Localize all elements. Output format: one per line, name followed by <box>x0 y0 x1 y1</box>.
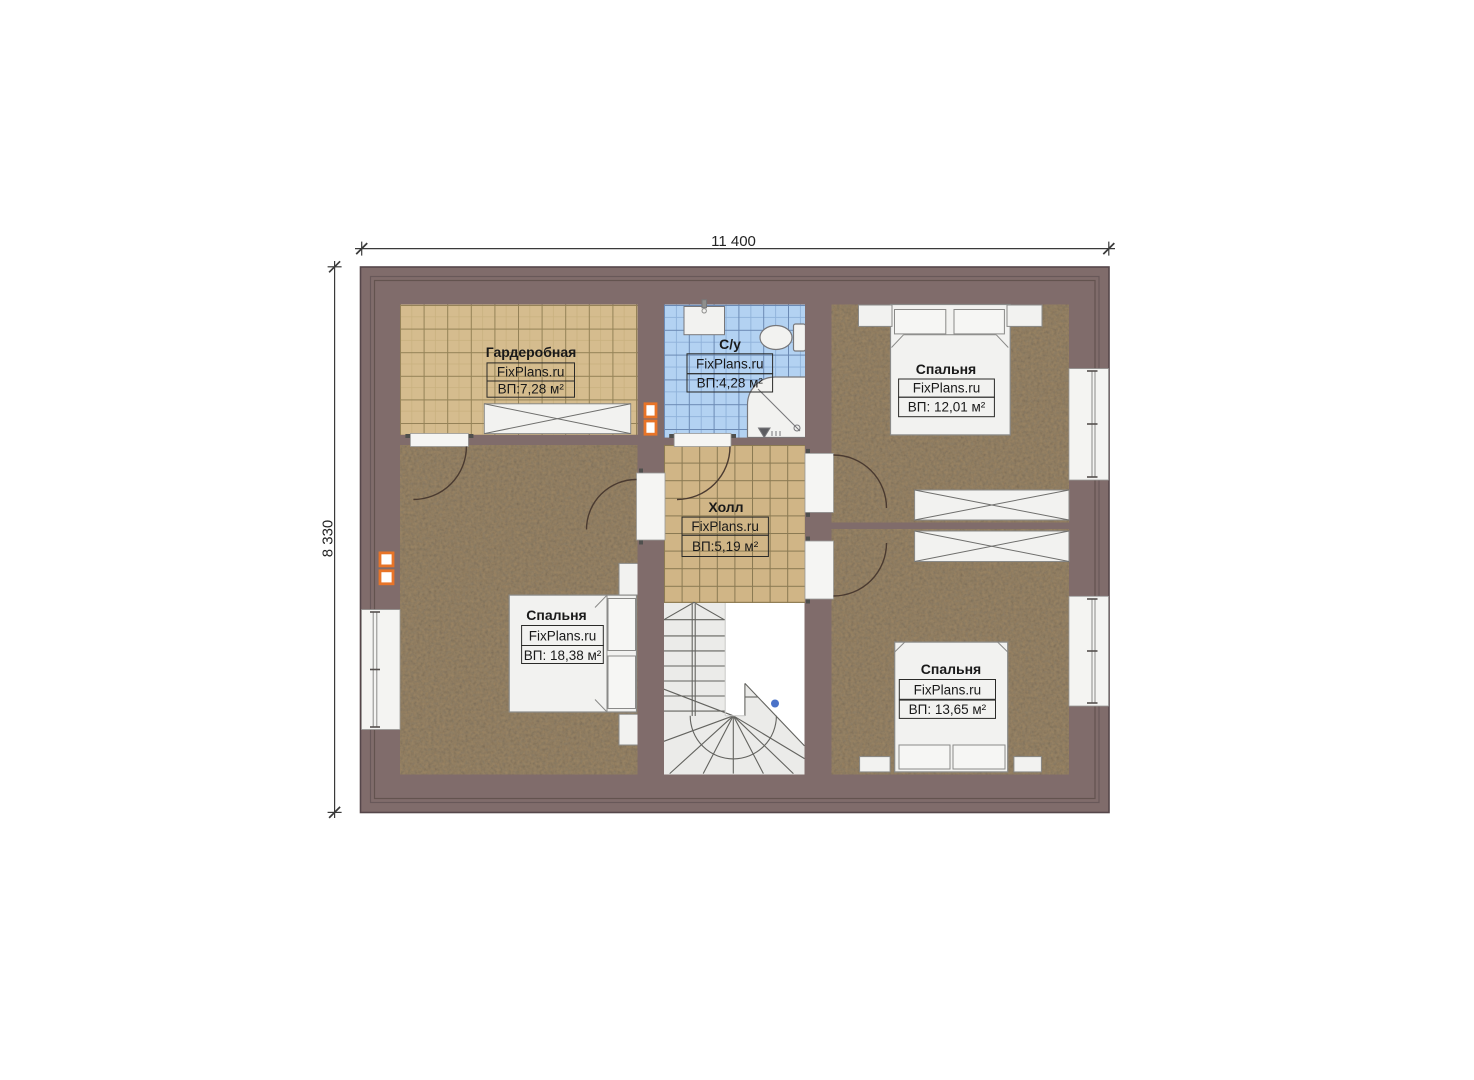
svg-text:FixPlans.ru: FixPlans.ru <box>696 357 764 372</box>
svg-text:8 330: 8 330 <box>320 520 337 558</box>
svg-text:ВП:5,19 м²: ВП:5,19 м² <box>692 539 759 554</box>
svg-text:Холл: Холл <box>708 499 743 515</box>
svg-text:Спальня: Спальня <box>526 607 586 623</box>
svg-text:11 400: 11 400 <box>711 233 756 250</box>
svg-text:Спальня: Спальня <box>916 361 976 377</box>
svg-text:ВП:7,28 м²: ВП:7,28 м² <box>498 382 565 397</box>
svg-text:FixPlans.ru: FixPlans.ru <box>691 519 759 534</box>
svg-text:FixPlans.ru: FixPlans.ru <box>914 683 982 698</box>
svg-text:ВП: 13,65 м²: ВП: 13,65 м² <box>909 702 987 717</box>
svg-text:ВП: 12,01 м²: ВП: 12,01 м² <box>908 400 986 415</box>
svg-text:FixPlans.ru: FixPlans.ru <box>497 365 565 380</box>
svg-text:Спальня: Спальня <box>921 661 981 677</box>
svg-text:С/у: С/у <box>719 336 741 352</box>
svg-text:ВП: 18,38 м²: ВП: 18,38 м² <box>524 648 602 663</box>
svg-text:FixPlans.ru: FixPlans.ru <box>913 381 981 396</box>
svg-text:FixPlans.ru: FixPlans.ru <box>529 629 597 644</box>
svg-text:Гардеробная: Гардеробная <box>486 344 577 360</box>
svg-text:ВП:4,28 м²: ВП:4,28 м² <box>697 376 764 391</box>
